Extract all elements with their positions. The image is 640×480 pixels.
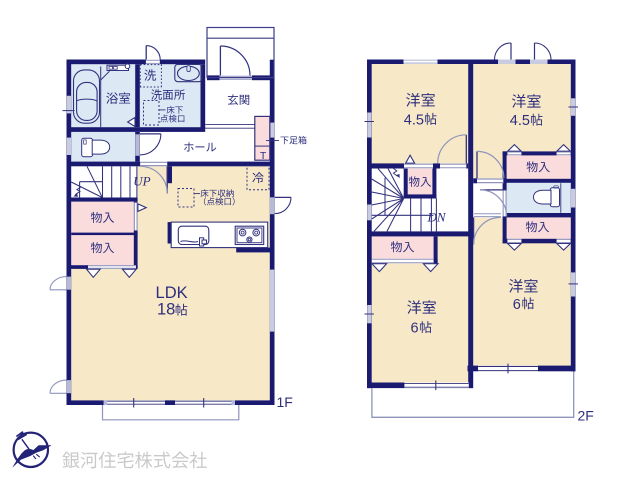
svg-text:4.5: 4.5 [404, 112, 424, 128]
svg-text:T: T [260, 150, 267, 162]
svg-text:UP: UP [133, 174, 150, 189]
svg-text:6: 6 [411, 321, 419, 337]
svg-text:6: 6 [513, 297, 521, 313]
svg-text:DN: DN [426, 210, 446, 225]
svg-text:1F: 1F [277, 394, 293, 410]
svg-text:4.5: 4.5 [510, 113, 530, 129]
svg-text:LDK: LDK [156, 284, 188, 302]
svg-text:2F: 2F [578, 408, 594, 424]
svg-text:18: 18 [157, 301, 175, 319]
